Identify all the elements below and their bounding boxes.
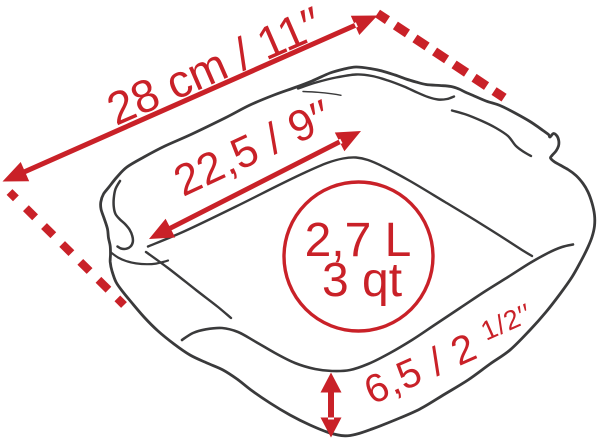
svg-text:3 qt: 3 qt (322, 254, 402, 307)
svg-text:22,5 / 9′′: 22,5 / 9′′ (167, 91, 340, 207)
